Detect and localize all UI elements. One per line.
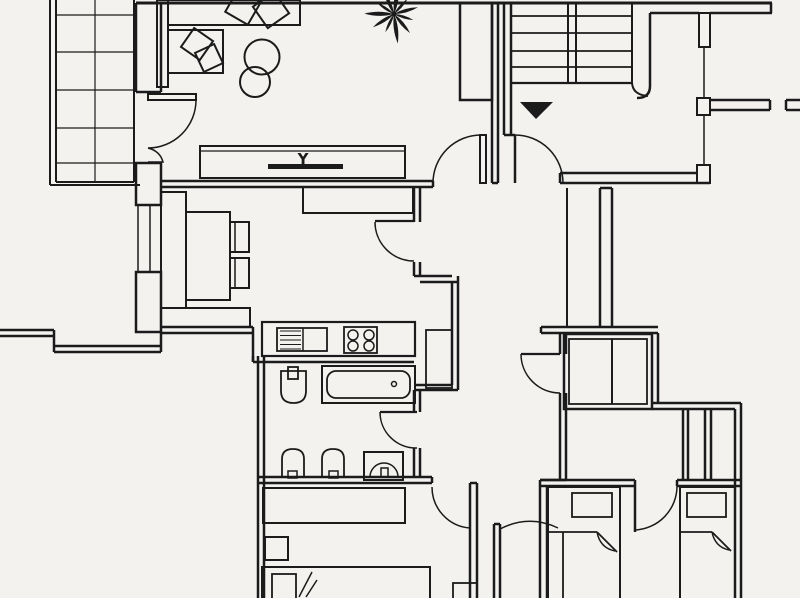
bedroom1-door-arc <box>432 487 470 528</box>
stove-burner-2 <box>364 330 374 340</box>
bedroom1-pillow <box>272 574 296 598</box>
washbasin-stem <box>381 468 388 477</box>
kitchen-counter-left <box>161 192 186 308</box>
bathtub-inner <box>327 371 410 398</box>
corridor-door-arc <box>500 521 558 529</box>
toilet-bowl <box>281 371 306 403</box>
closet2-outer <box>564 334 652 409</box>
bidet-1 <box>282 449 304 478</box>
wall-pilaster-hall <box>697 165 710 183</box>
bedroom1-bed <box>262 567 430 598</box>
bathtub-drain <box>392 382 397 387</box>
living-door-arc <box>433 135 481 183</box>
kitchen-counter-bottom <box>161 308 250 327</box>
floor-plan: Y <box>0 0 800 598</box>
kitchen-wall-cabinet <box>303 187 413 213</box>
living-door-leaf <box>480 135 486 183</box>
bedroom1-box <box>453 583 477 598</box>
stool-1 <box>230 222 249 252</box>
entrance-arrow <box>520 102 553 119</box>
bedroom2-pillow <box>572 493 612 517</box>
west-wall-block-low <box>136 272 161 332</box>
stair-stringer-curve <box>632 83 648 96</box>
washbasin-bowl <box>370 463 398 477</box>
plant-leaf-icon <box>364 12 394 16</box>
wall-bracket-mid <box>697 98 710 115</box>
bath-door-arc <box>380 412 417 448</box>
balcony-door-leaf <box>148 94 196 100</box>
balcony-door-arc-small <box>148 148 163 162</box>
stove-burner-1 <box>348 330 358 340</box>
sofa-armrest <box>157 0 168 87</box>
hall-door-arc <box>521 354 560 393</box>
bedroom23-door-arc <box>635 486 677 530</box>
stool-2 <box>230 258 249 288</box>
wall-pier-living <box>460 3 492 100</box>
side-table-small <box>240 67 270 97</box>
bidet-2 <box>322 449 344 478</box>
bed1-blanket-slash-a <box>299 572 312 597</box>
bedroom1-nightstand <box>265 537 288 560</box>
bedroom2-bed <box>548 487 620 598</box>
wall-stub-topright <box>699 13 710 47</box>
toilet-tank <box>288 367 298 379</box>
balcony-door-arc <box>148 100 196 148</box>
bedroom3-pillow <box>687 493 726 517</box>
plant-center-icon <box>392 12 397 17</box>
stair-outer-wall-curve <box>637 13 650 98</box>
floor-plan-canvas: Y <box>0 0 800 598</box>
stove-burner-4 <box>364 341 374 351</box>
closet2-inner <box>569 339 647 404</box>
stove-burner-3 <box>348 341 358 351</box>
kitchen-peninsula <box>186 212 230 300</box>
bed1-blanket-slash-b <box>306 580 317 597</box>
kitchen-door-arc <box>375 222 414 261</box>
entrance-door-arc <box>515 135 563 183</box>
bedroom1-wardrobe <box>263 488 405 523</box>
tv-marker-symbol: Y <box>297 150 310 168</box>
hall-closet <box>426 330 452 388</box>
